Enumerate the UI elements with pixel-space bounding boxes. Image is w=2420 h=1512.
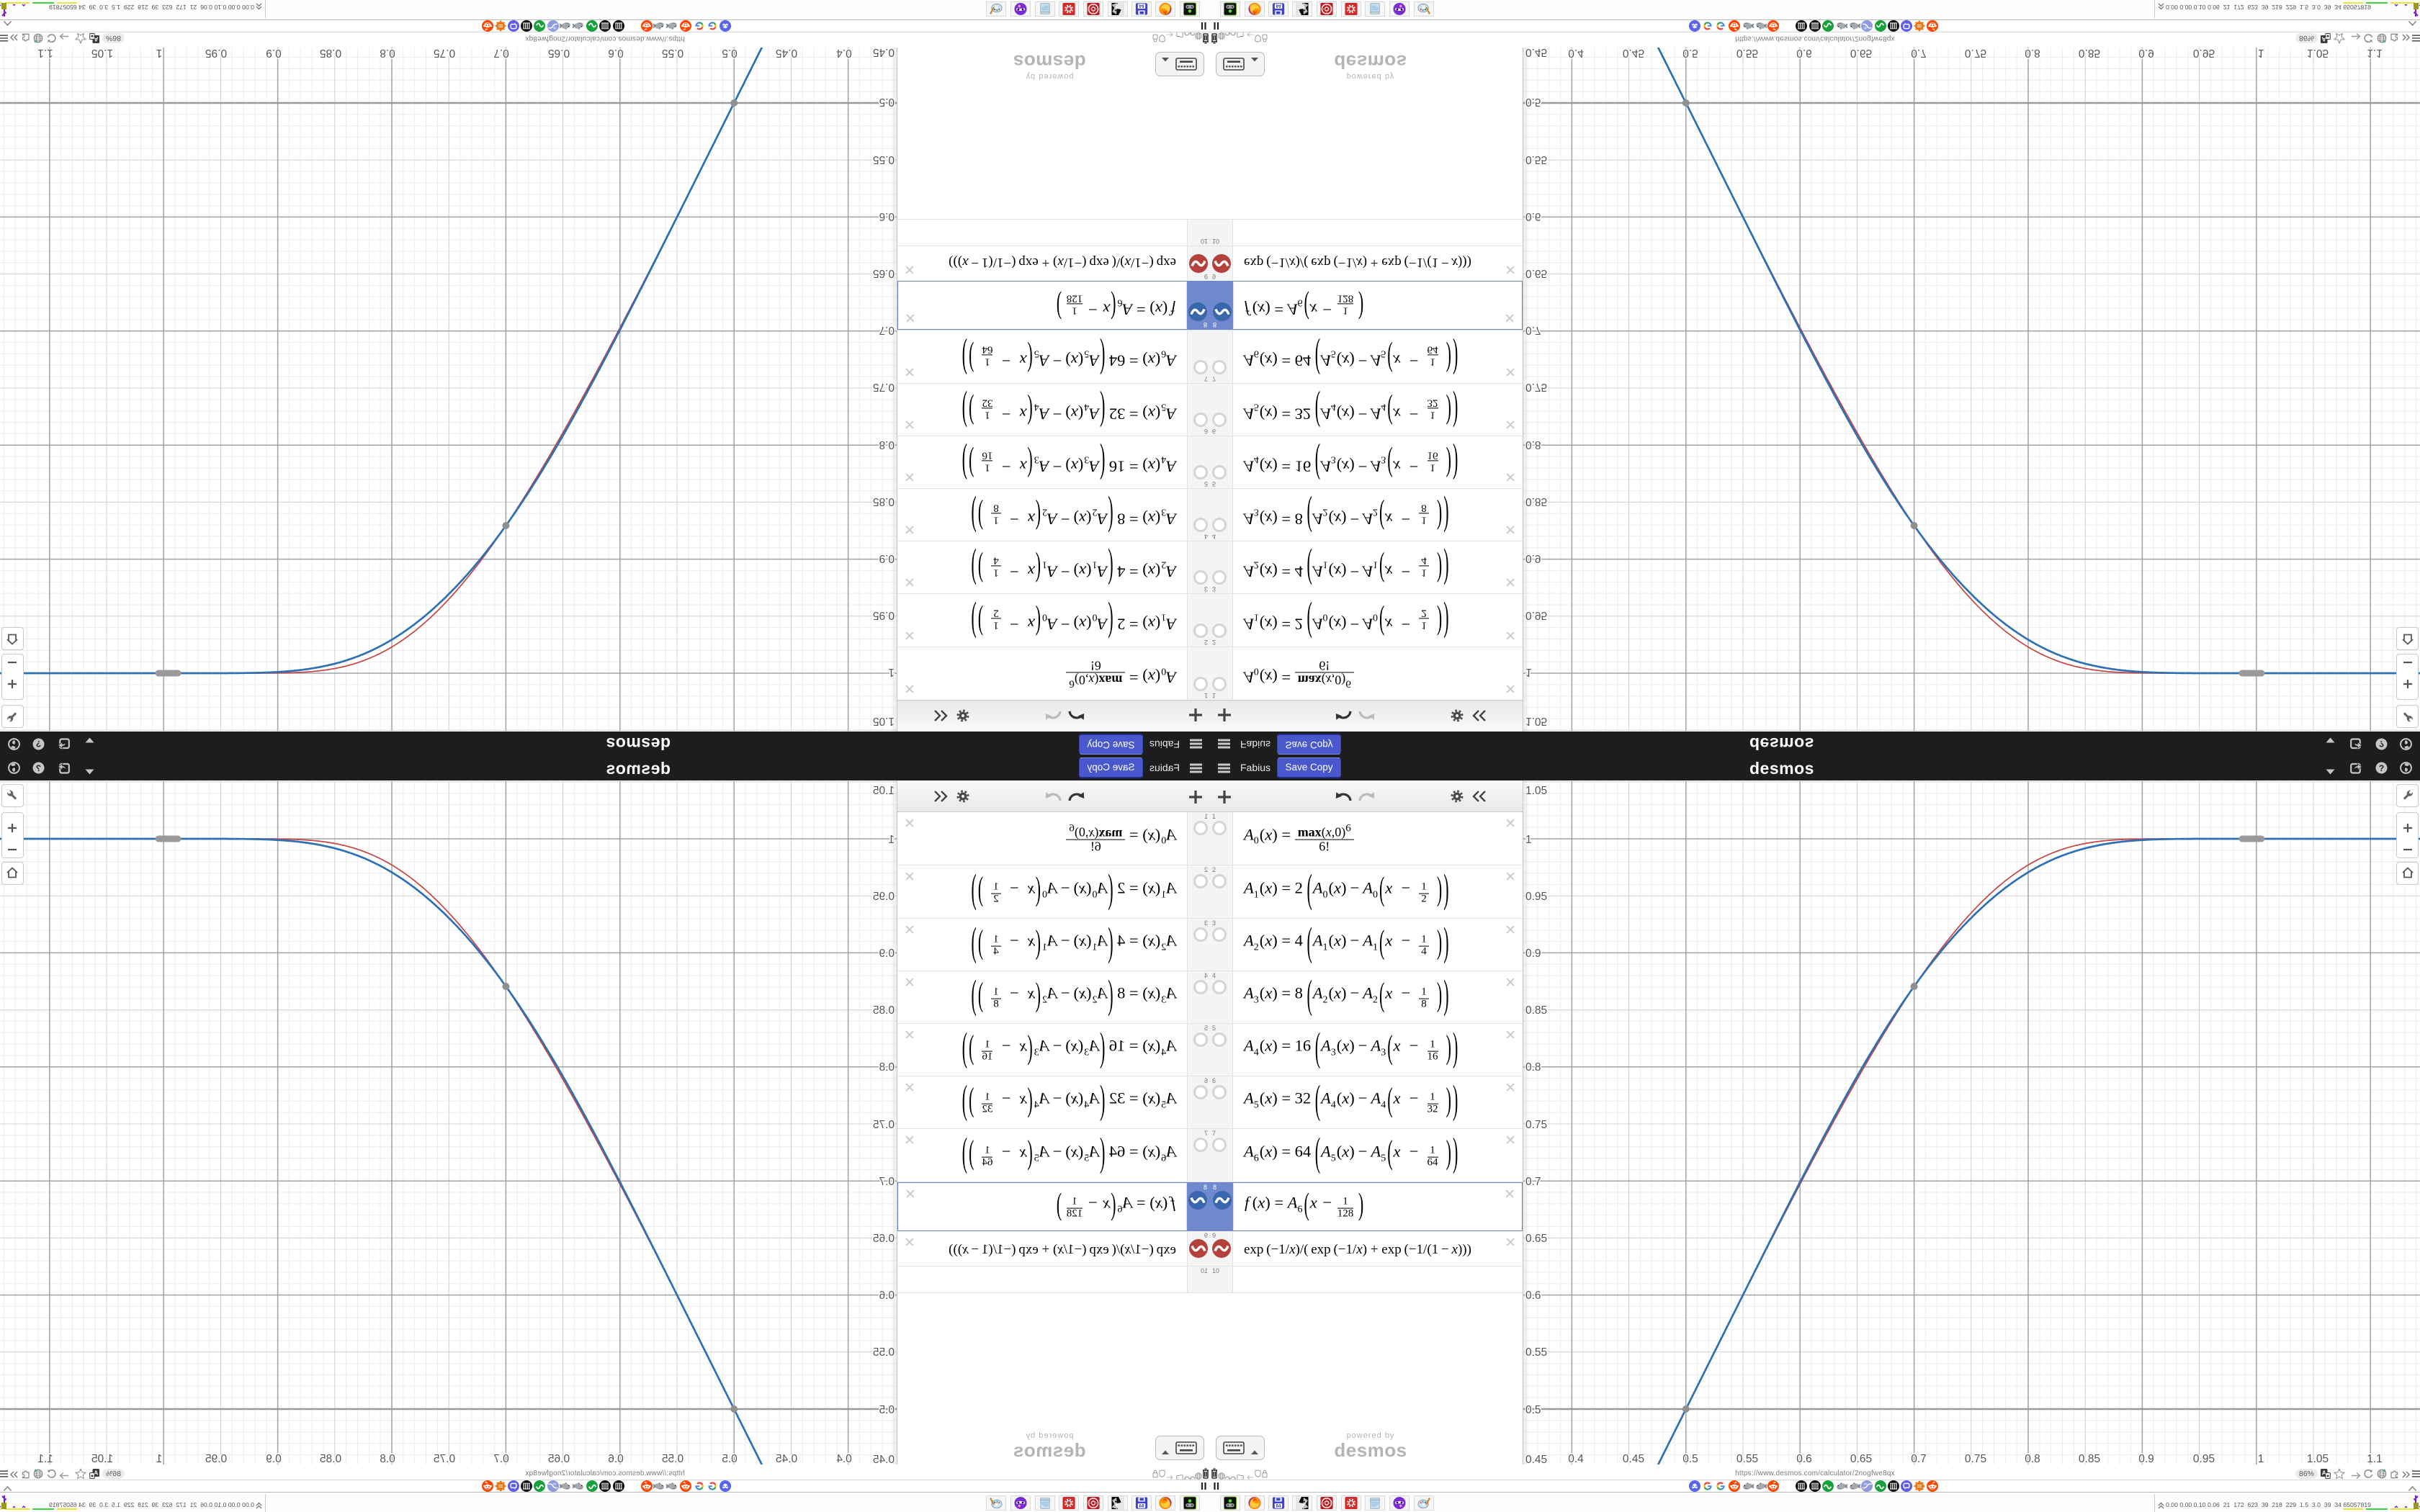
svg-text:0.85: 0.85 xyxy=(2079,1453,2100,1464)
svg-text:0.9: 0.9 xyxy=(2138,1453,2154,1464)
svg-text:0.8: 0.8 xyxy=(2025,48,2040,59)
svg-text:1.1: 1.1 xyxy=(37,48,53,59)
svg-text:1.05: 1.05 xyxy=(2307,48,2329,59)
svg-text:1.1: 1.1 xyxy=(37,1453,53,1464)
svg-text:0.6: 0.6 xyxy=(1796,1453,1812,1464)
svg-text:0.75: 0.75 xyxy=(1965,48,1986,59)
svg-text:0.75: 0.75 xyxy=(434,48,455,59)
svg-text:0.9: 0.9 xyxy=(266,1453,282,1464)
svg-text:64: 64 xyxy=(1276,4,1281,9)
svg-text:0.55: 0.55 xyxy=(1736,48,1758,59)
svg-text:1: 1 xyxy=(156,1453,163,1464)
svg-text:0.7: 0.7 xyxy=(1911,48,1927,59)
svg-text:1: 1 xyxy=(2258,1453,2264,1464)
svg-text:0.8: 0.8 xyxy=(380,1453,395,1464)
svg-text:1.05: 1.05 xyxy=(91,48,113,59)
svg-text:0.45: 0.45 xyxy=(776,48,797,59)
svg-text:0.4: 0.4 xyxy=(1568,48,1584,59)
svg-text:0.6: 0.6 xyxy=(1796,48,1812,59)
svg-text:0.7: 0.7 xyxy=(493,48,509,59)
svg-text:1.05: 1.05 xyxy=(2307,1453,2329,1464)
svg-text:0.6: 0.6 xyxy=(608,1453,624,1464)
svg-text:0.55: 0.55 xyxy=(662,1453,684,1464)
svg-text:0.8: 0.8 xyxy=(2025,1453,2040,1464)
svg-text:0.95: 0.95 xyxy=(2193,1453,2215,1464)
svg-text:0.5: 0.5 xyxy=(722,1453,738,1464)
svg-text:64: 64 xyxy=(1276,1503,1281,1508)
svg-text:1.1: 1.1 xyxy=(2367,48,2383,59)
svg-text:0.5: 0.5 xyxy=(1682,1453,1698,1464)
svg-text:0.55: 0.55 xyxy=(1736,1453,1758,1464)
svg-text:★: ★ xyxy=(2326,33,2330,39)
svg-text:0.45: 0.45 xyxy=(1623,48,1644,59)
svg-text:0.7: 0.7 xyxy=(1911,1453,1927,1464)
svg-text:1.1: 1.1 xyxy=(2367,1453,2383,1464)
svg-text:1: 1 xyxy=(2258,48,2264,59)
svg-text:0.45: 0.45 xyxy=(776,1453,797,1464)
svg-text:0.65: 0.65 xyxy=(548,48,570,59)
svg-text:0.9: 0.9 xyxy=(2138,48,2154,59)
svg-text:★: ★ xyxy=(90,33,94,39)
svg-text:0.45: 0.45 xyxy=(1623,1453,1644,1464)
svg-text:?: ? xyxy=(2379,739,2384,749)
svg-text:0.75: 0.75 xyxy=(1965,1453,1986,1464)
svg-text:?: ? xyxy=(2379,763,2384,773)
svg-text:64: 64 xyxy=(1139,1503,1144,1508)
svg-text:0.85: 0.85 xyxy=(320,1453,341,1464)
svg-text:0.7: 0.7 xyxy=(493,1453,509,1464)
svg-text:0.95: 0.95 xyxy=(2193,48,2215,59)
svg-text:0.65: 0.65 xyxy=(1850,48,1872,59)
svg-text:0.5: 0.5 xyxy=(722,48,738,59)
svg-text:0.65: 0.65 xyxy=(548,1453,570,1464)
svg-text:0.4: 0.4 xyxy=(836,1453,852,1464)
svg-text:0.5: 0.5 xyxy=(1682,48,1698,59)
svg-text:0.4: 0.4 xyxy=(1568,1453,1584,1464)
svg-text:1: 1 xyxy=(156,48,163,59)
svg-text:1.05: 1.05 xyxy=(91,1453,113,1464)
svg-text:0.95: 0.95 xyxy=(205,1453,227,1464)
svg-text:64: 64 xyxy=(1139,4,1144,9)
svg-text:0.55: 0.55 xyxy=(662,48,684,59)
svg-text:0.8: 0.8 xyxy=(380,48,395,59)
svg-text:0.85: 0.85 xyxy=(320,48,341,59)
svg-text:★: ★ xyxy=(2326,1473,2330,1479)
svg-text:0.65: 0.65 xyxy=(1850,1453,1872,1464)
svg-text:0.95: 0.95 xyxy=(205,48,227,59)
svg-text:0.6: 0.6 xyxy=(608,48,624,59)
svg-text:0.4: 0.4 xyxy=(836,48,852,59)
svg-text:★: ★ xyxy=(90,1473,94,1479)
svg-text:?: ? xyxy=(36,739,41,749)
svg-text:?: ? xyxy=(36,763,41,773)
svg-text:0.75: 0.75 xyxy=(434,1453,455,1464)
svg-text:0.9: 0.9 xyxy=(266,48,282,59)
svg-text:0.85: 0.85 xyxy=(2079,48,2100,59)
